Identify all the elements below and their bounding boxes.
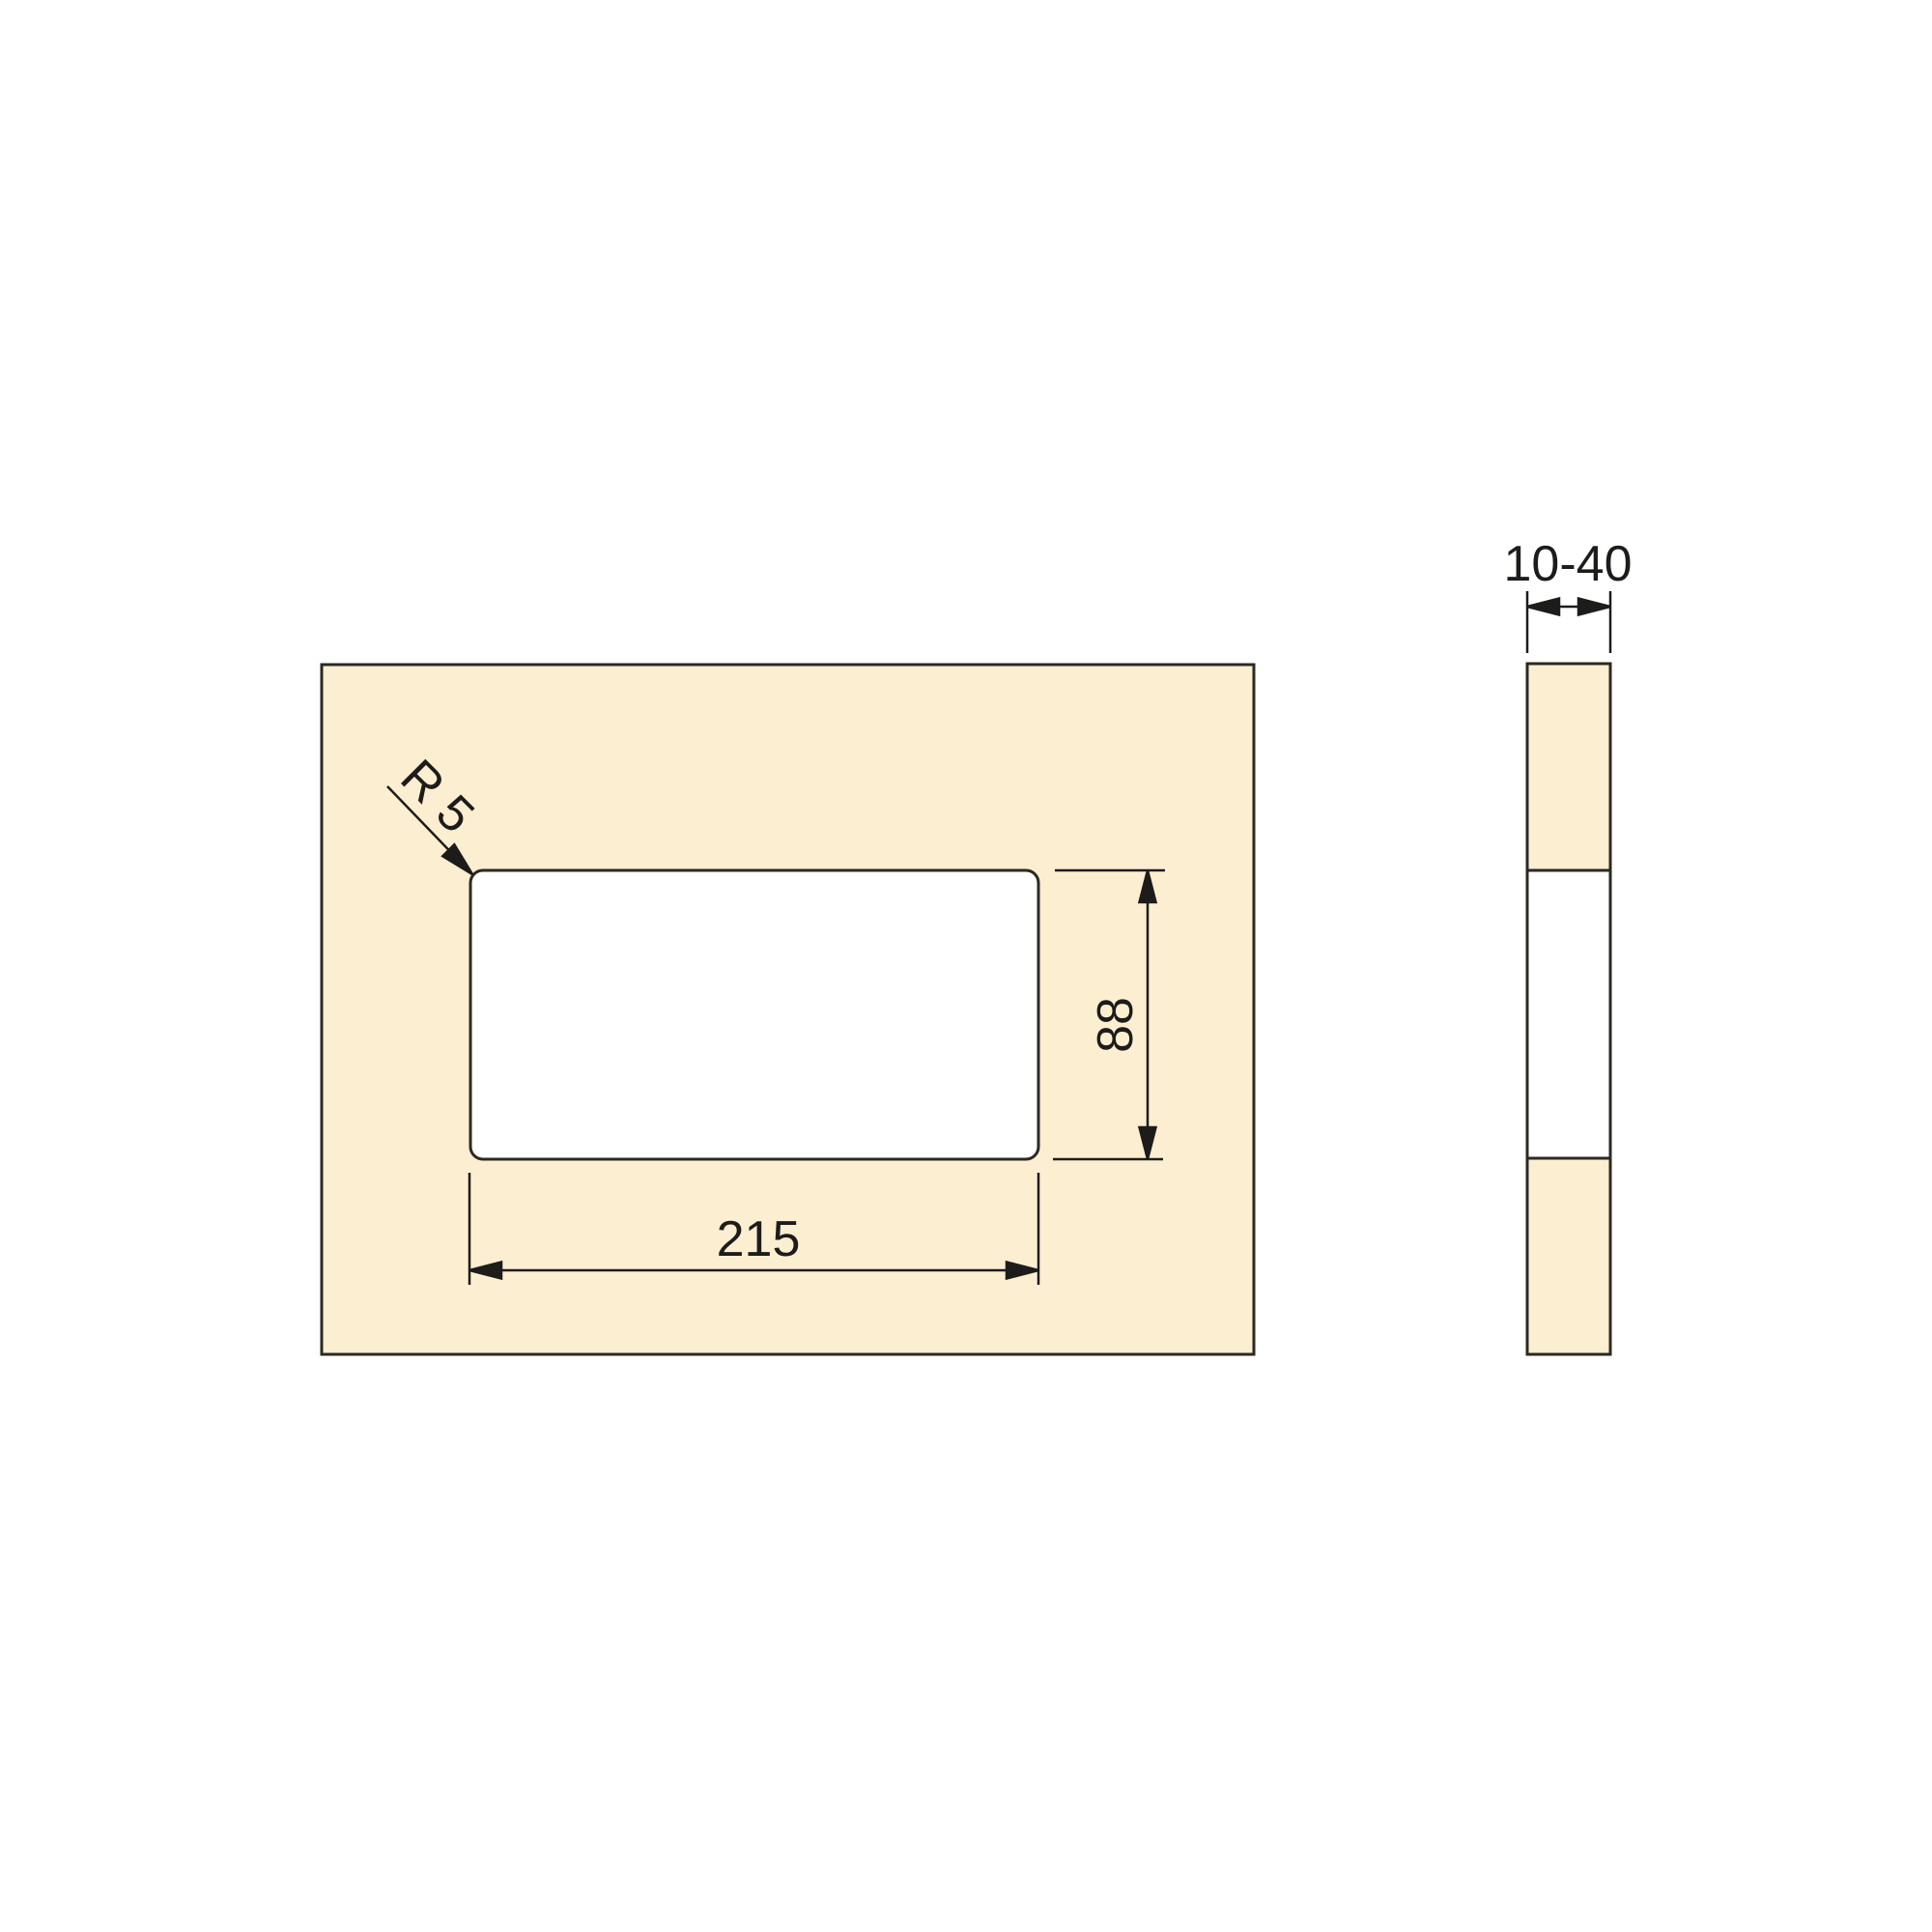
svg-text:88: 88 xyxy=(1088,997,1144,1053)
svg-text:215: 215 xyxy=(717,1211,801,1267)
svg-text:10-40: 10-40 xyxy=(1504,536,1633,592)
